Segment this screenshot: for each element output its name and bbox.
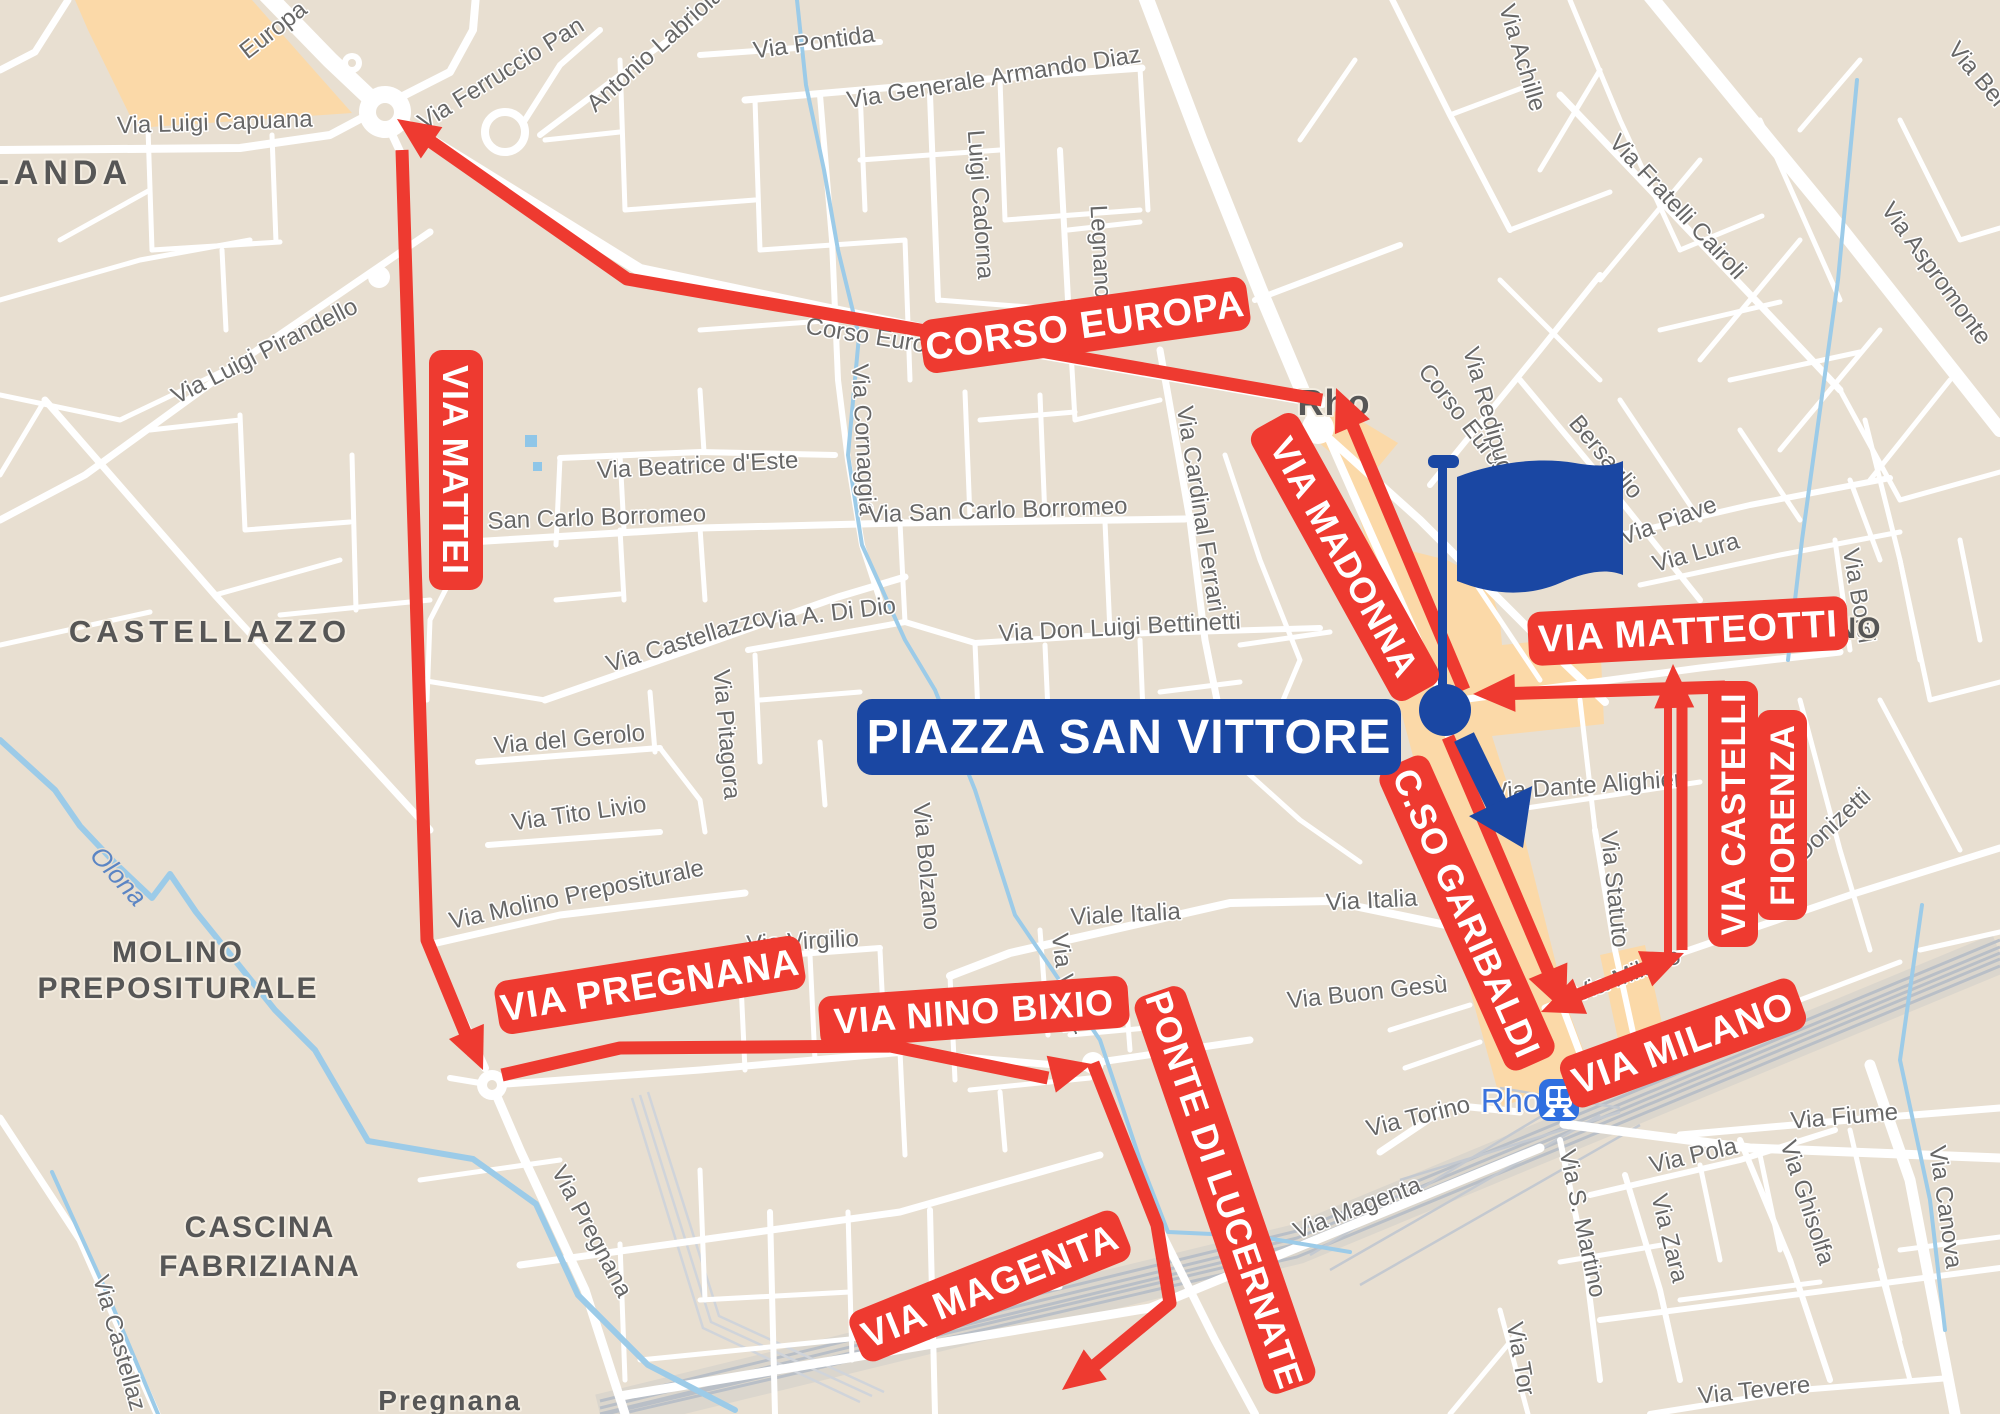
svg-text:CASCINA: CASCINA bbox=[185, 1211, 336, 1244]
svg-text:Pregnana: Pregnana bbox=[378, 1385, 522, 1414]
svg-text:CASTELLAZZO: CASTELLAZZO bbox=[69, 614, 351, 649]
svg-text:Rho: Rho bbox=[1481, 1082, 1542, 1119]
svg-text:VIA CASTELLI: VIA CASTELLI bbox=[1715, 692, 1753, 935]
svg-text:Via Italia: Via Italia bbox=[1325, 885, 1419, 917]
svg-text:MOLINO: MOLINO bbox=[112, 936, 244, 969]
svg-text:Legnano: Legnano bbox=[1085, 204, 1117, 299]
svg-text:FABRIZIANA: FABRIZIANA bbox=[159, 1250, 361, 1283]
svg-text:VIA MATTEI: VIA MATTEI bbox=[435, 365, 476, 575]
svg-text:PREPOSITURALE: PREPOSITURALE bbox=[37, 972, 318, 1005]
svg-text:PIAZZA SAN VITTORE: PIAZZA SAN VITTORE bbox=[867, 711, 1392, 764]
svg-text:LANDA: LANDA bbox=[0, 154, 132, 192]
svg-text:FIORENZA: FIORENZA bbox=[1764, 724, 1802, 906]
